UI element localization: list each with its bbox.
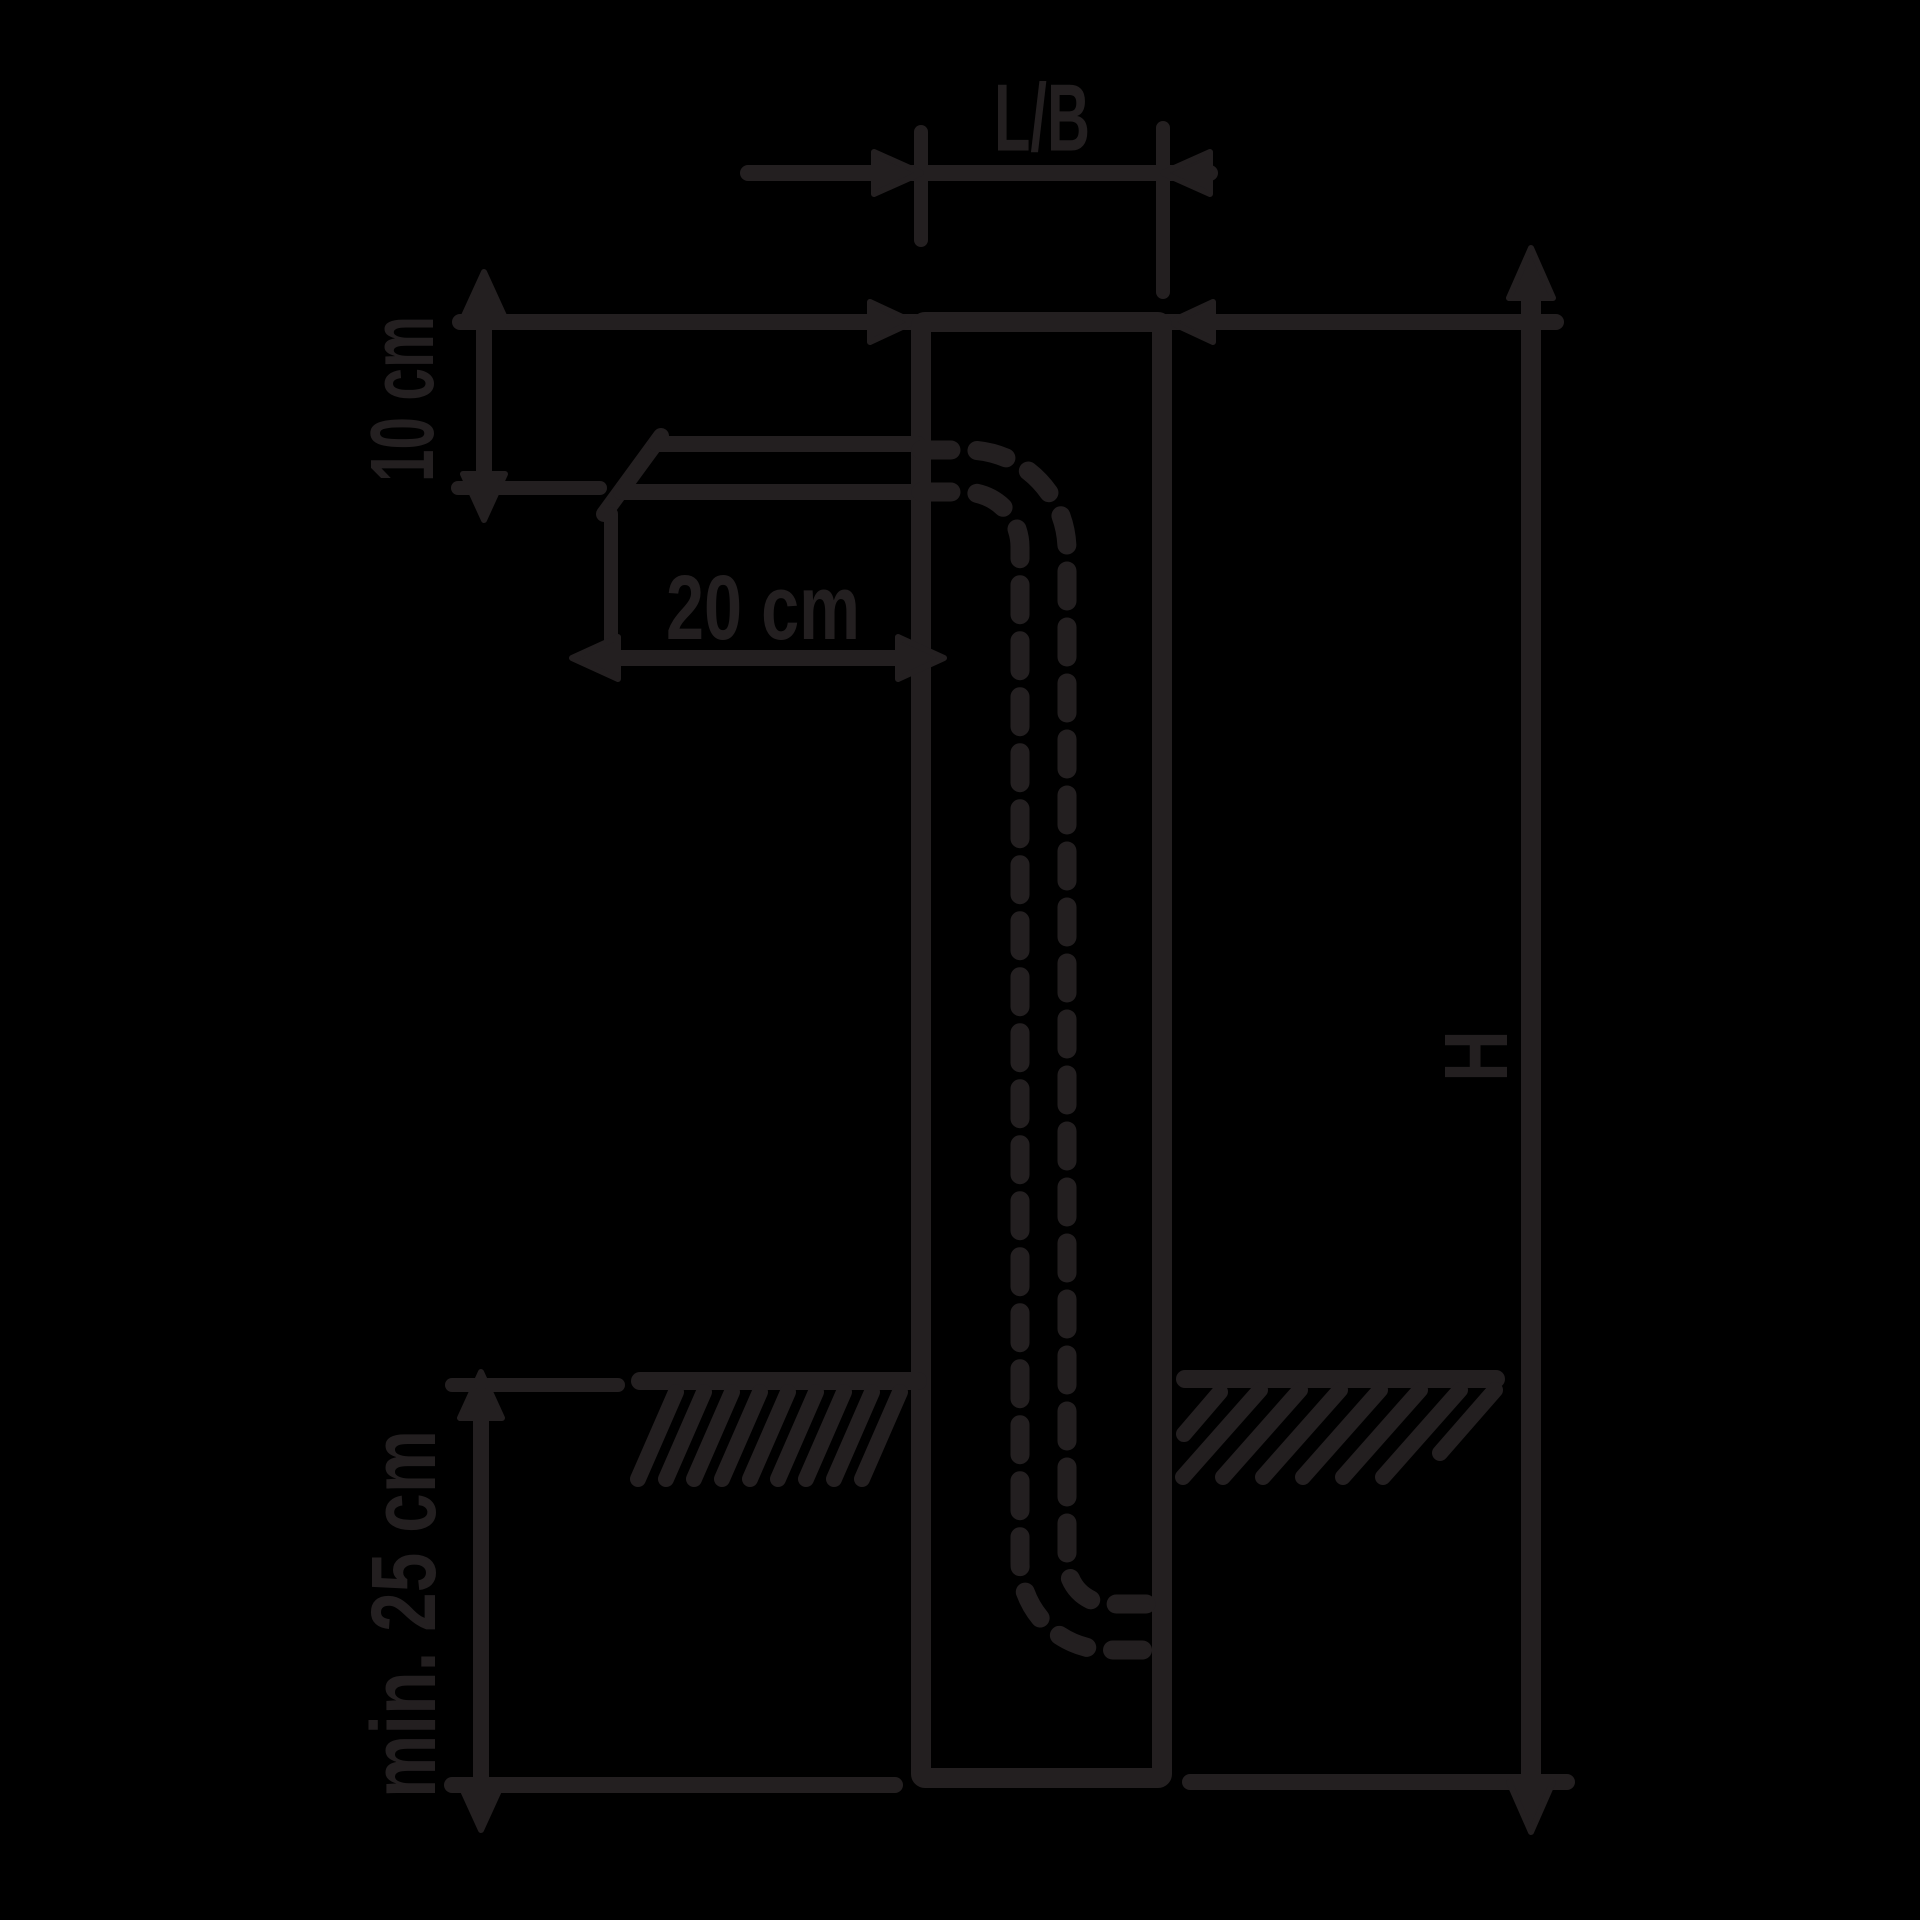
arrowhead-up-icon: [463, 272, 505, 318]
label-post-height: H: [1427, 1030, 1527, 1082]
label-cable-depth: 10 cm: [353, 316, 453, 482]
label-foundation-depth: min. 25 cm: [353, 1430, 455, 1798]
conduit-hidden-outer-wall: [921, 450, 1157, 1604]
arrowhead-left-icon: [1163, 152, 1210, 194]
dimension-cable-depth: 10 cm: [353, 272, 600, 520]
arrowhead-left-icon: [1170, 302, 1213, 342]
arrowhead-left-icon: [572, 637, 618, 679]
arrowhead-right-icon: [874, 152, 921, 194]
ground-line-with-hatching: [452, 1379, 1496, 1479]
installation-diagram-canvas: L/B 10 cm 20 cm: [0, 0, 1920, 1920]
post-outline: [921, 322, 1162, 1778]
arrowhead-down-icon: [1509, 1782, 1553, 1832]
conduit-hidden-inner-wall: [921, 492, 1157, 1650]
cable-conduit-hidden-dashed: [921, 450, 1157, 1650]
arrowhead-right-icon: [870, 302, 913, 342]
dimension-post-width: L/B: [748, 65, 1210, 293]
dimension-cable-offset: 20 cm: [572, 514, 944, 679]
dimension-post-height: H: [1427, 248, 1553, 1832]
label-cable-offset: 20 cm: [666, 557, 860, 659]
installation-diagram: L/B 10 cm 20 cm: [0, 0, 1920, 1920]
ground-hatch-left: [638, 1392, 900, 1479]
label-post-width: L/B: [994, 65, 1090, 172]
arrowhead-up-icon: [1509, 248, 1553, 298]
ground-hatch-right: [1183, 1390, 1495, 1477]
arrowhead-down-icon: [463, 474, 505, 520]
dimension-foundation-depth: min. 25 cm: [353, 1372, 895, 1830]
cable-conduit-solid: [604, 436, 918, 514]
